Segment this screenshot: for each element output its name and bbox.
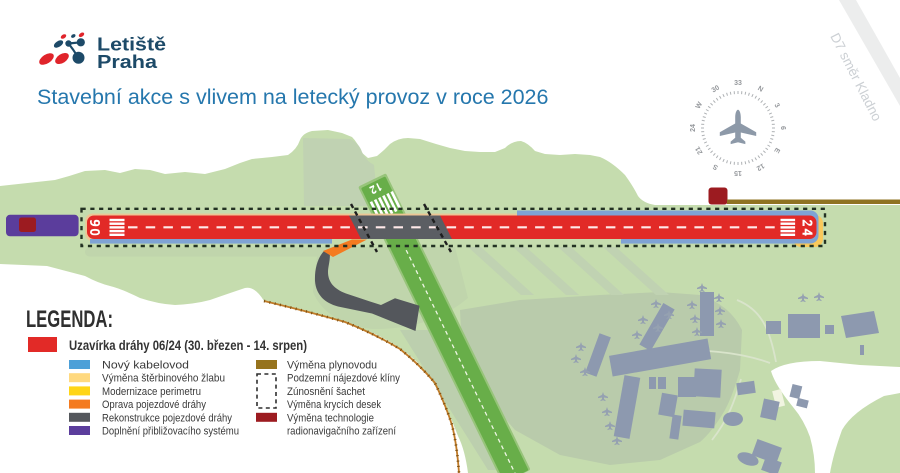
svg-text:Výměna technologie: Výměna technologie: [287, 412, 374, 424]
svg-text:6: 6: [779, 126, 786, 130]
svg-text:Stavební akce s vlivem na lete: Stavební akce s vlivem na letecký provoz…: [37, 85, 549, 109]
svg-text:24: 24: [690, 124, 697, 132]
svg-text:Zúnosnění šachet: Zúnosnění šachet: [287, 386, 365, 398]
svg-text:Podzemní nájezdové klíny: Podzemní nájezdové klíny: [287, 373, 400, 385]
svg-text:Nový kabelovod: Nový kabelovod: [102, 360, 189, 372]
svg-text:Modernizace perimetru: Modernizace perimetru: [102, 386, 201, 398]
svg-text:radionavigačního zařízení: radionavigačního zařízení: [287, 426, 396, 438]
svg-text:LEGENDA:: LEGENDA:: [26, 306, 113, 333]
svg-text:Výměna krycích desek: Výměna krycích desek: [287, 399, 381, 411]
svg-text:Doplnění přibližovacího systém: Doplnění přibližovacího systému: [102, 426, 239, 438]
svg-text:Výměna štěrbinového žlabu: Výměna štěrbinového žlabu: [102, 373, 225, 385]
svg-text:Praha: Praha: [97, 52, 158, 72]
svg-text:Výměna plynovodu: Výměna plynovodu: [287, 360, 377, 372]
svg-text:15: 15: [734, 169, 742, 176]
svg-text:Uzavírka dráhy 06/24 (30. břez: Uzavírka dráhy 06/24 (30. březen - 14. s…: [69, 337, 307, 353]
svg-text:33: 33: [734, 80, 742, 87]
svg-text:Oprava pojezdové dráhy: Oprava pojezdové dráhy: [102, 399, 206, 411]
svg-text:Rekonstrukce pojezdové dráhy: Rekonstrukce pojezdové dráhy: [102, 412, 232, 424]
